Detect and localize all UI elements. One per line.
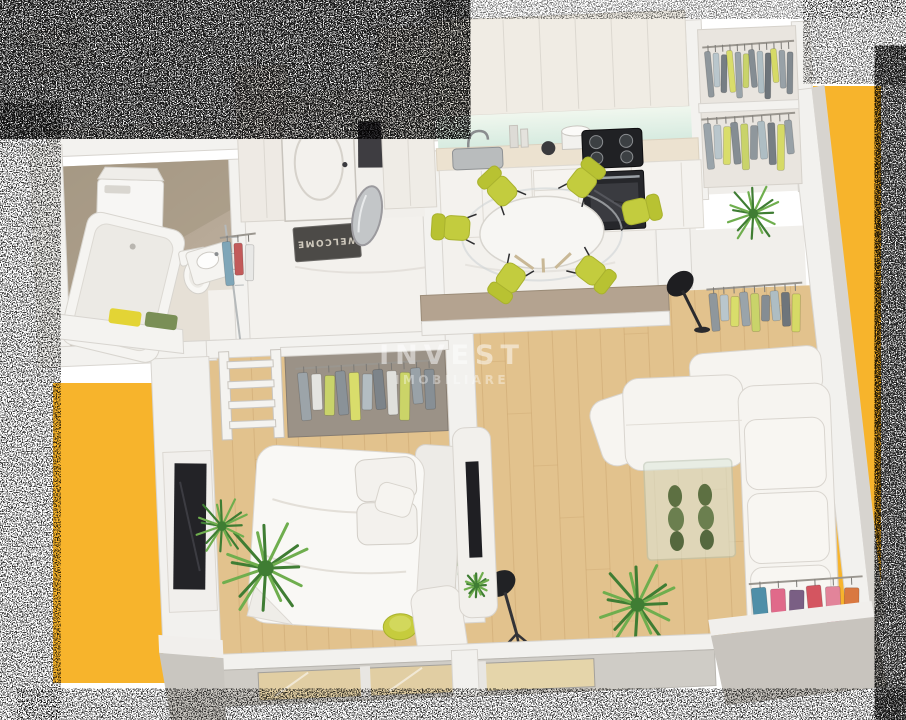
floor-plan-image: WELCOME bbox=[0, 0, 906, 720]
window-glass bbox=[484, 659, 595, 692]
wardrobe-top-right bbox=[696, 26, 803, 188]
doormat: WELCOME bbox=[293, 223, 361, 262]
wall-pillar bbox=[451, 650, 479, 697]
watermark: INVEST IMOBILIARE bbox=[379, 340, 525, 387]
watermark-line2: IMOBILIARE bbox=[395, 373, 509, 387]
bottle bbox=[521, 129, 529, 147]
bottle bbox=[509, 125, 518, 147]
watermark-line1: INVEST bbox=[379, 340, 525, 371]
floor-plan-svg: WELCOME bbox=[0, 0, 906, 720]
coffee-table bbox=[644, 459, 736, 561]
